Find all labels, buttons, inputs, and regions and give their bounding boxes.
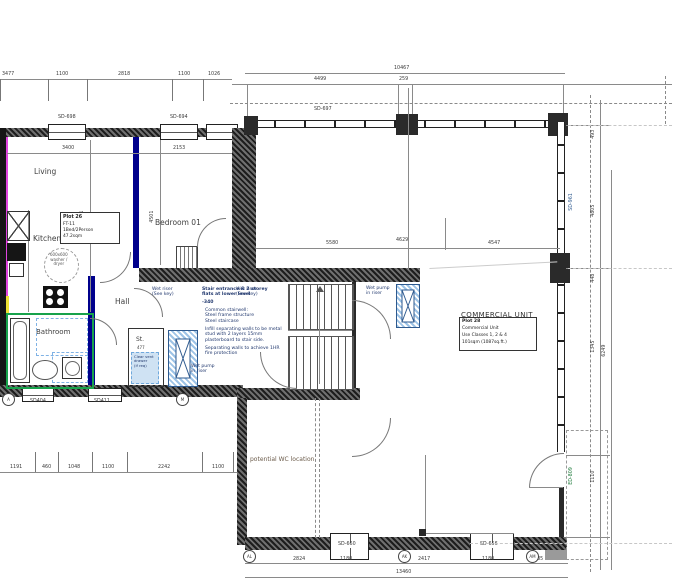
commercial-right-glazing (557, 122, 565, 452)
corner-post-2 (396, 114, 418, 135)
dim-line-bottom-total (245, 577, 568, 578)
witness-line (160, 140, 161, 265)
dim-tick (58, 452, 59, 472)
grid-bubble-a: A (2, 393, 15, 406)
door-track-line (426, 533, 514, 534)
stair-note-level: -340 (202, 300, 214, 305)
stair-landing-line (288, 330, 352, 331)
grid-bubble-m-label: M (181, 397, 184, 402)
kitchen-sink (7, 211, 30, 241)
dim-bottom-left-1: 1191 (10, 466, 22, 471)
dim-tick-h (566, 537, 610, 538)
dim-bottom-left-2: 460 (42, 466, 51, 471)
bathtub-inner (13, 321, 27, 380)
dim-bottom-left-5: 2242 (158, 466, 170, 471)
window-top-1 (48, 124, 86, 140)
commercial-area: 101sqm (1087sq.ft.) (462, 340, 507, 345)
dim-line-top-right (232, 84, 672, 85)
dim-tick-h (566, 455, 610, 456)
commercial-door-leaf (529, 487, 563, 488)
grid-bubble-ak-label: AK (402, 554, 407, 559)
plot-area: 47.2sqm (63, 234, 82, 239)
store-dim: 477 (137, 346, 145, 350)
grid-bubble-m: M (176, 393, 189, 406)
room-label-kitchen: Kitchen (33, 235, 61, 244)
dim-right-2: 4805 (592, 205, 597, 217)
bottom-right-pier (545, 550, 567, 560)
dim-bottom-left-6: 1100 (212, 466, 224, 471)
dim-bottom-total: 13460 (396, 571, 411, 576)
window-tag-sd698: SD-698 (58, 116, 76, 121)
stair-note-title: Stair entrance & 2 storey flats at lower… (202, 287, 268, 298)
door-stop-block (419, 529, 426, 536)
dim-tick (412, 84, 413, 116)
window-tag-sd411: SD411 (94, 400, 110, 405)
dim-tick (398, 84, 399, 116)
dim-line-top-right-total (245, 73, 565, 74)
dim-top-left-5: 1026 (208, 73, 220, 78)
dim-line-bottom (245, 563, 568, 564)
centerline-3 (470, 543, 672, 544)
dim-living-width: 3400 (62, 147, 74, 152)
plot-beds: 1Bed/2Person (63, 228, 93, 233)
commercial-left-wall (237, 398, 247, 545)
wc-pan-bowl (65, 361, 80, 376)
flat-top-wall (0, 128, 236, 137)
door-tag-ed809: ED-809 (570, 467, 575, 485)
witness-line (445, 218, 446, 250)
dim-mid-2: 4629 (396, 239, 408, 244)
dim-tick (563, 84, 564, 116)
dim-bottom-4: 1180 (482, 558, 494, 563)
plot-number: Plot 26 (63, 215, 82, 221)
dim-line-right-outer (611, 170, 612, 570)
wc-location-note: potential WC location (250, 457, 314, 464)
room-label-hall: Hall (115, 298, 129, 307)
dim-tick (172, 79, 173, 101)
dim-tick (35, 452, 36, 472)
hob-burner (57, 298, 64, 305)
dim-line-top-left (0, 79, 232, 80)
dim-tick (202, 452, 203, 472)
dim-right-1: 493 (592, 130, 597, 139)
store-vent-note: Clear vent drawer (if req) (134, 355, 154, 368)
riser-x-brace (169, 331, 197, 386)
grid-bubble-al: AL (243, 550, 256, 563)
stair-note-body2: Infill separating walls to be metal stud… (205, 327, 282, 343)
centerline-1 (568, 125, 672, 126)
dashed-witness-line (665, 76, 666, 124)
dim-top-right-total: 10467 (394, 67, 409, 72)
hob-burner (46, 289, 53, 296)
dim-bottom-3: 2417 (418, 558, 430, 563)
wardrobe (176, 246, 198, 270)
dim-top-left-3: 2818 (118, 73, 130, 78)
mid-wall (139, 268, 420, 282)
dim-right-4: 1345 (592, 341, 597, 353)
washer-dryer-label: 600x600 washer / dryer (50, 253, 68, 267)
dim-bedroom-width: 2153 (173, 147, 185, 152)
grid-bubble-a-label: A (7, 397, 10, 402)
grid-bubble-am: AM (526, 550, 539, 563)
grid-line-horizontal (230, 103, 672, 104)
wet-pump-label-2: Wet pump in riser (366, 286, 390, 297)
window-tag-sd694: SD-694 (170, 116, 188, 121)
dim-right-5: 1110 (592, 471, 597, 483)
dim-right-3: 448 (592, 274, 597, 283)
dim-mid-1: 5580 (326, 242, 338, 247)
dim-top-left-1: 3477 (2, 73, 14, 78)
corner-post-1 (244, 116, 258, 135)
wall-line-yellow (6, 296, 9, 313)
bathroom-door-arc (90, 318, 117, 345)
commercial-use: Commercial Unit (462, 326, 499, 331)
plot-type: FT-11 (63, 222, 75, 227)
dim-bottom-2: 1180 (340, 558, 352, 563)
dim-bottom-left-3: 1048 (68, 466, 80, 471)
stair-left-wall (232, 128, 256, 268)
wet-riser-label-1: Wet riser (See key) (152, 287, 174, 298)
stair-arrow-head (316, 286, 324, 292)
ramp-line (429, 261, 557, 279)
wet-riser-shaft-1 (168, 330, 198, 387)
wet-riser-shaft-2 (396, 284, 420, 328)
window-tag-sd961: SD-961 (570, 193, 575, 211)
floor-plan-canvas: 3477 1100 2818 1100 1026 10467 4499 259 … (0, 0, 675, 585)
dim-tick (87, 79, 88, 101)
stair-flight-lower (288, 336, 354, 390)
dim-tick (92, 452, 93, 472)
dim-top-left-4: 1100 (178, 73, 190, 78)
grid-bubble-am-label: AM (529, 554, 535, 559)
kitchen-door-arc (100, 252, 131, 283)
lobby-door-arc (260, 352, 297, 389)
kitchen-unit (9, 263, 24, 277)
dim-tick (127, 452, 128, 472)
dim-top-right-2: 259 (399, 78, 408, 83)
bathtub (10, 318, 30, 383)
dim-tick (203, 79, 204, 101)
basin (32, 360, 58, 380)
canopy-dashed-outline (566, 430, 608, 560)
window-tag-sd697: SD-697 (314, 108, 332, 113)
wet-pump-label-1: Wet pump in riser (191, 364, 215, 375)
commercial-inner-door-arc (352, 418, 391, 457)
dim-top-right-1: 4499 (314, 78, 326, 83)
dim-tick (233, 452, 234, 472)
room-label-bedroom: Bedroom 01 (155, 219, 201, 228)
stair-note-body3: Separating walls to achieve 1HR fire pro… (205, 346, 280, 357)
dim-mid-3: 4547 (488, 242, 500, 247)
hob-burner (57, 289, 64, 296)
wc-partition-dashed-2 (319, 398, 320, 538)
commercial-classes: Use Classes 1, 2 & 4 (462, 333, 507, 338)
dim-top-left-2: 1100 (56, 73, 68, 78)
centerline-2 (568, 268, 672, 269)
dim-right-6: 6249 (603, 345, 608, 357)
right-wall-lower (559, 487, 564, 539)
hob-burner (46, 298, 53, 305)
wc-pan (62, 357, 82, 379)
commercial-plot: Plot 28 (462, 319, 480, 324)
bedroom-door-arc (197, 218, 226, 247)
wc-partition-dashed-1 (315, 398, 316, 538)
stair-direction-line (319, 288, 320, 384)
witness-line (408, 88, 409, 270)
dim-line-right-inner (600, 100, 601, 570)
grid-bubble-ak: AK (398, 550, 411, 563)
dim-bottom-left-4: 1100 (102, 466, 114, 471)
dim-bottom-1: 2824 (293, 558, 305, 563)
window-top-2 (160, 124, 198, 140)
dim-line-bottom-left (0, 472, 237, 473)
riser-door-arc (352, 300, 391, 339)
stair-note-body1: Common stairwell: Steel frame structure … (205, 308, 254, 324)
window-tag-sd404: SD404 (30, 400, 46, 405)
kitchen-oven (7, 243, 26, 261)
dim-tick (0, 79, 1, 101)
dim-tick (48, 79, 49, 101)
shower-zone (36, 318, 88, 356)
dim-tick (247, 84, 248, 118)
riser-x-brace (397, 285, 419, 327)
interior-dim-line (7, 153, 232, 154)
kitchen-hob (43, 286, 68, 308)
room-label-living: Living (34, 168, 56, 177)
interior-line (425, 455, 426, 535)
window-tag-sd660: SD-660 (338, 543, 356, 548)
room-label-store: St. (136, 337, 144, 344)
grid-bubble-al-label: AL (247, 554, 252, 559)
commercial-entrance-arc (529, 453, 564, 488)
party-wall-bedroom (133, 137, 139, 268)
